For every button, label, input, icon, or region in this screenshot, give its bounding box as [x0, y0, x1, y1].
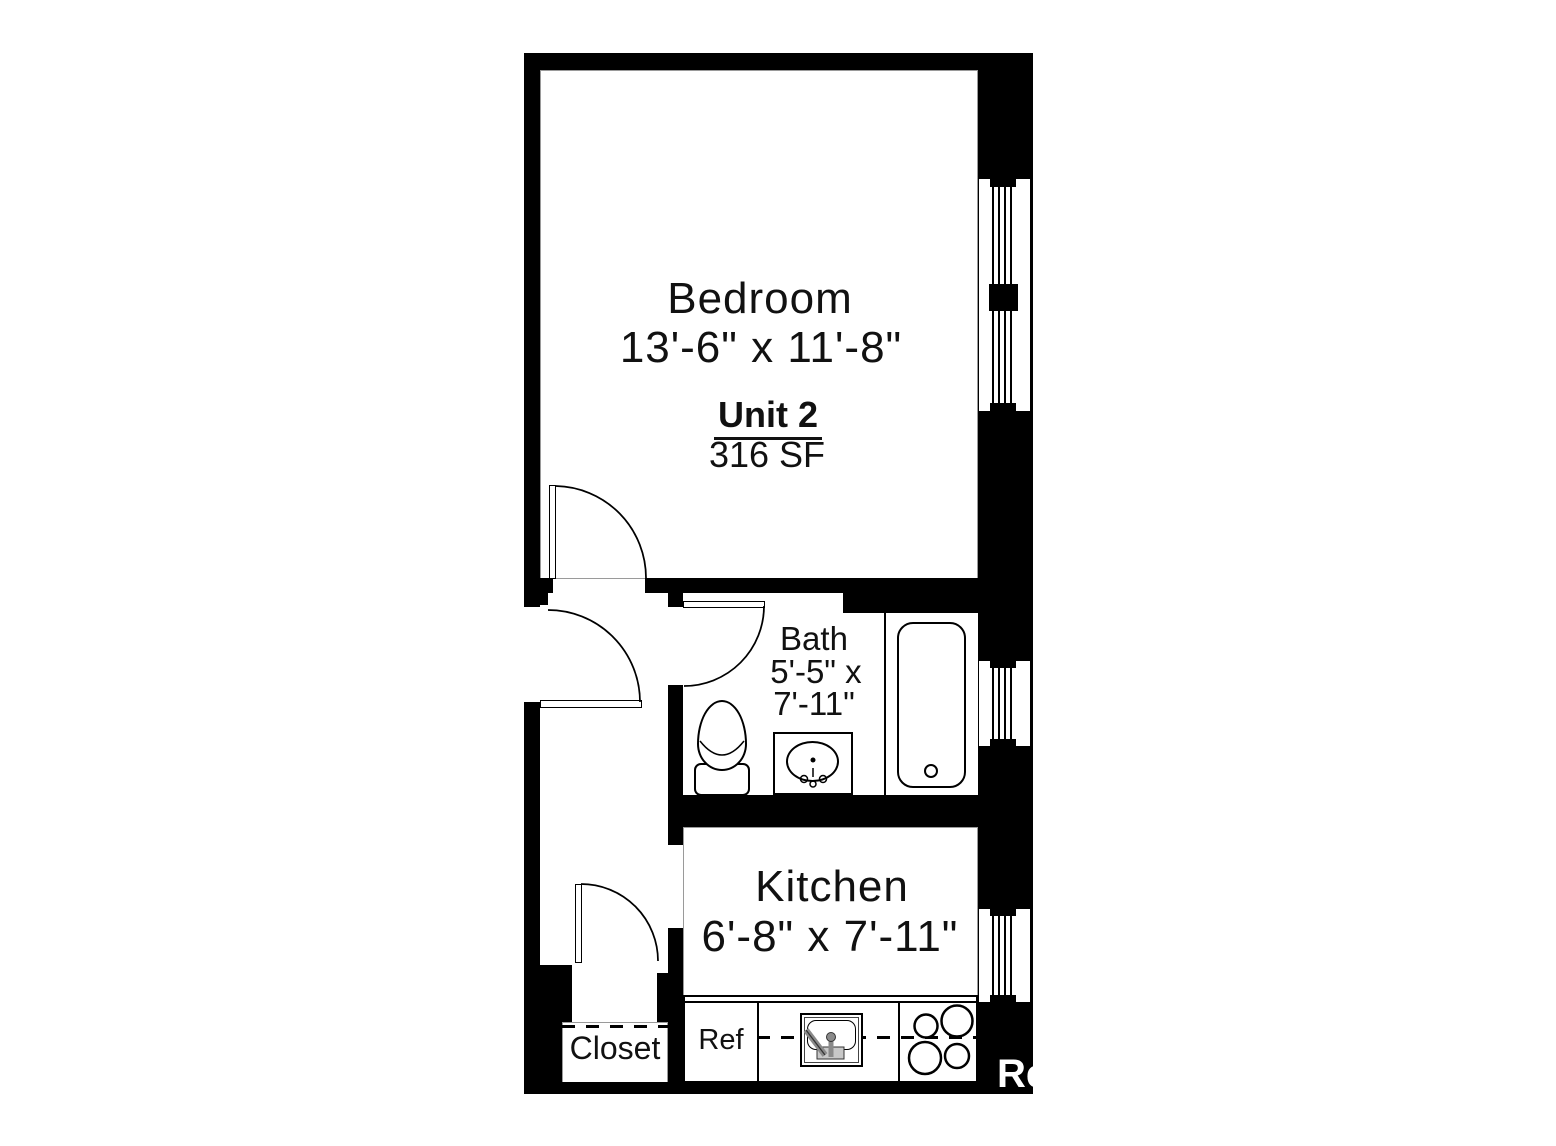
window-glazing-line: [998, 661, 1000, 746]
wall-bath-west-stub: [668, 593, 683, 607]
window-cap: [990, 661, 1016, 668]
window-cap: [990, 403, 1016, 411]
floor-plan-canvas: Bedroom 13'-6" x 11'-8" Unit 2 316 SF Ba…: [0, 0, 1556, 1146]
closet-door: [575, 884, 582, 963]
wall-bath-north: [843, 593, 983, 613]
bedroom-window-divider: [989, 284, 1018, 311]
window-glazing-line: [1004, 661, 1006, 746]
wall-closet-east-step: [657, 973, 668, 1022]
window-glazing-line: [992, 909, 994, 1002]
window-glazing-line: [998, 909, 1000, 1002]
kitchen-window: [978, 908, 1031, 1003]
wall-bedroom-bottom-left-stub: [540, 578, 553, 593]
window-cap: [990, 995, 1016, 1002]
bedroom-label: Bedroom: [610, 274, 910, 324]
bedroom-door: [549, 485, 556, 579]
bath-window: [978, 660, 1031, 747]
window-glazing-line: [1010, 909, 1012, 1002]
wall-left-upper: [524, 70, 540, 607]
bath-door: [683, 601, 765, 608]
wall-bath-kitchen: [668, 795, 983, 827]
window-glazing-line: [1010, 661, 1012, 746]
counter-edge-line: [685, 1001, 976, 1003]
window-glazing-line: [992, 661, 994, 746]
bedroom-dimensions: 13'-6" x 11'-8": [611, 323, 911, 373]
wall-entry-top-jamb: [540, 593, 548, 605]
bedroom-window: [978, 178, 1031, 412]
counter-divider: [898, 1001, 900, 1081]
watermark-text: Re: [997, 1056, 1033, 1094]
window-cap: [990, 739, 1016, 746]
wall-bedroom-bottom: [645, 578, 983, 593]
bathtub-drain: [924, 764, 938, 778]
closet-door-arc: [581, 884, 658, 961]
wall-bottom: [524, 1082, 983, 1094]
kitchen-label: Kitchen: [682, 862, 982, 912]
bath-dimensions-line2: 7'-11": [664, 685, 964, 723]
watermark: Re: [992, 1056, 1033, 1094]
entry-door: [540, 700, 642, 708]
wall-closet-west-block: [540, 965, 572, 1022]
window-cap: [990, 909, 1016, 916]
wall-top: [524, 53, 1033, 70]
kitchen-dimensions: 6'-8" x 7'-11": [680, 912, 980, 962]
window-glazing-line: [1004, 909, 1006, 1002]
window-cap: [990, 179, 1016, 187]
entry-door-arc: [548, 610, 640, 702]
refrigerator-label: Ref: [571, 1024, 871, 1057]
vanity-sink-basin: [786, 741, 839, 782]
unit-area: 316 SF: [617, 434, 917, 476]
